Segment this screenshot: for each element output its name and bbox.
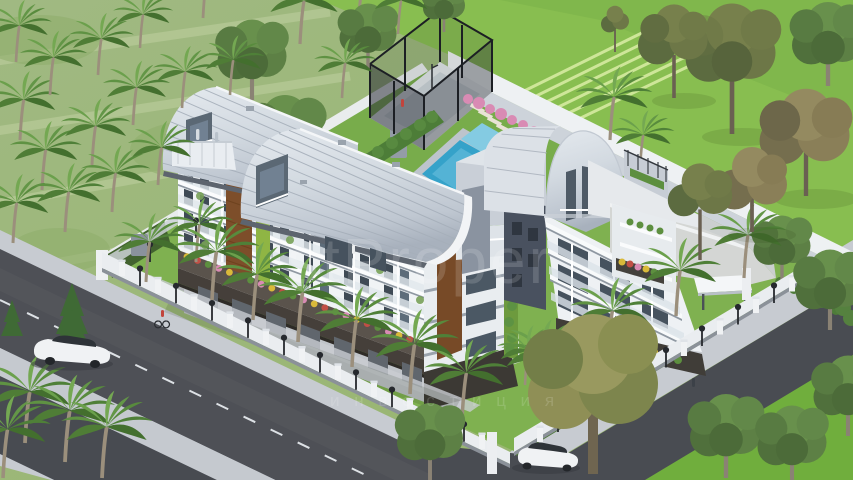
svg-text:и н в е с т и ц и я: и н в е с т и ц и я bbox=[330, 391, 559, 410]
svg-text:stProper: stProper bbox=[287, 225, 553, 297]
